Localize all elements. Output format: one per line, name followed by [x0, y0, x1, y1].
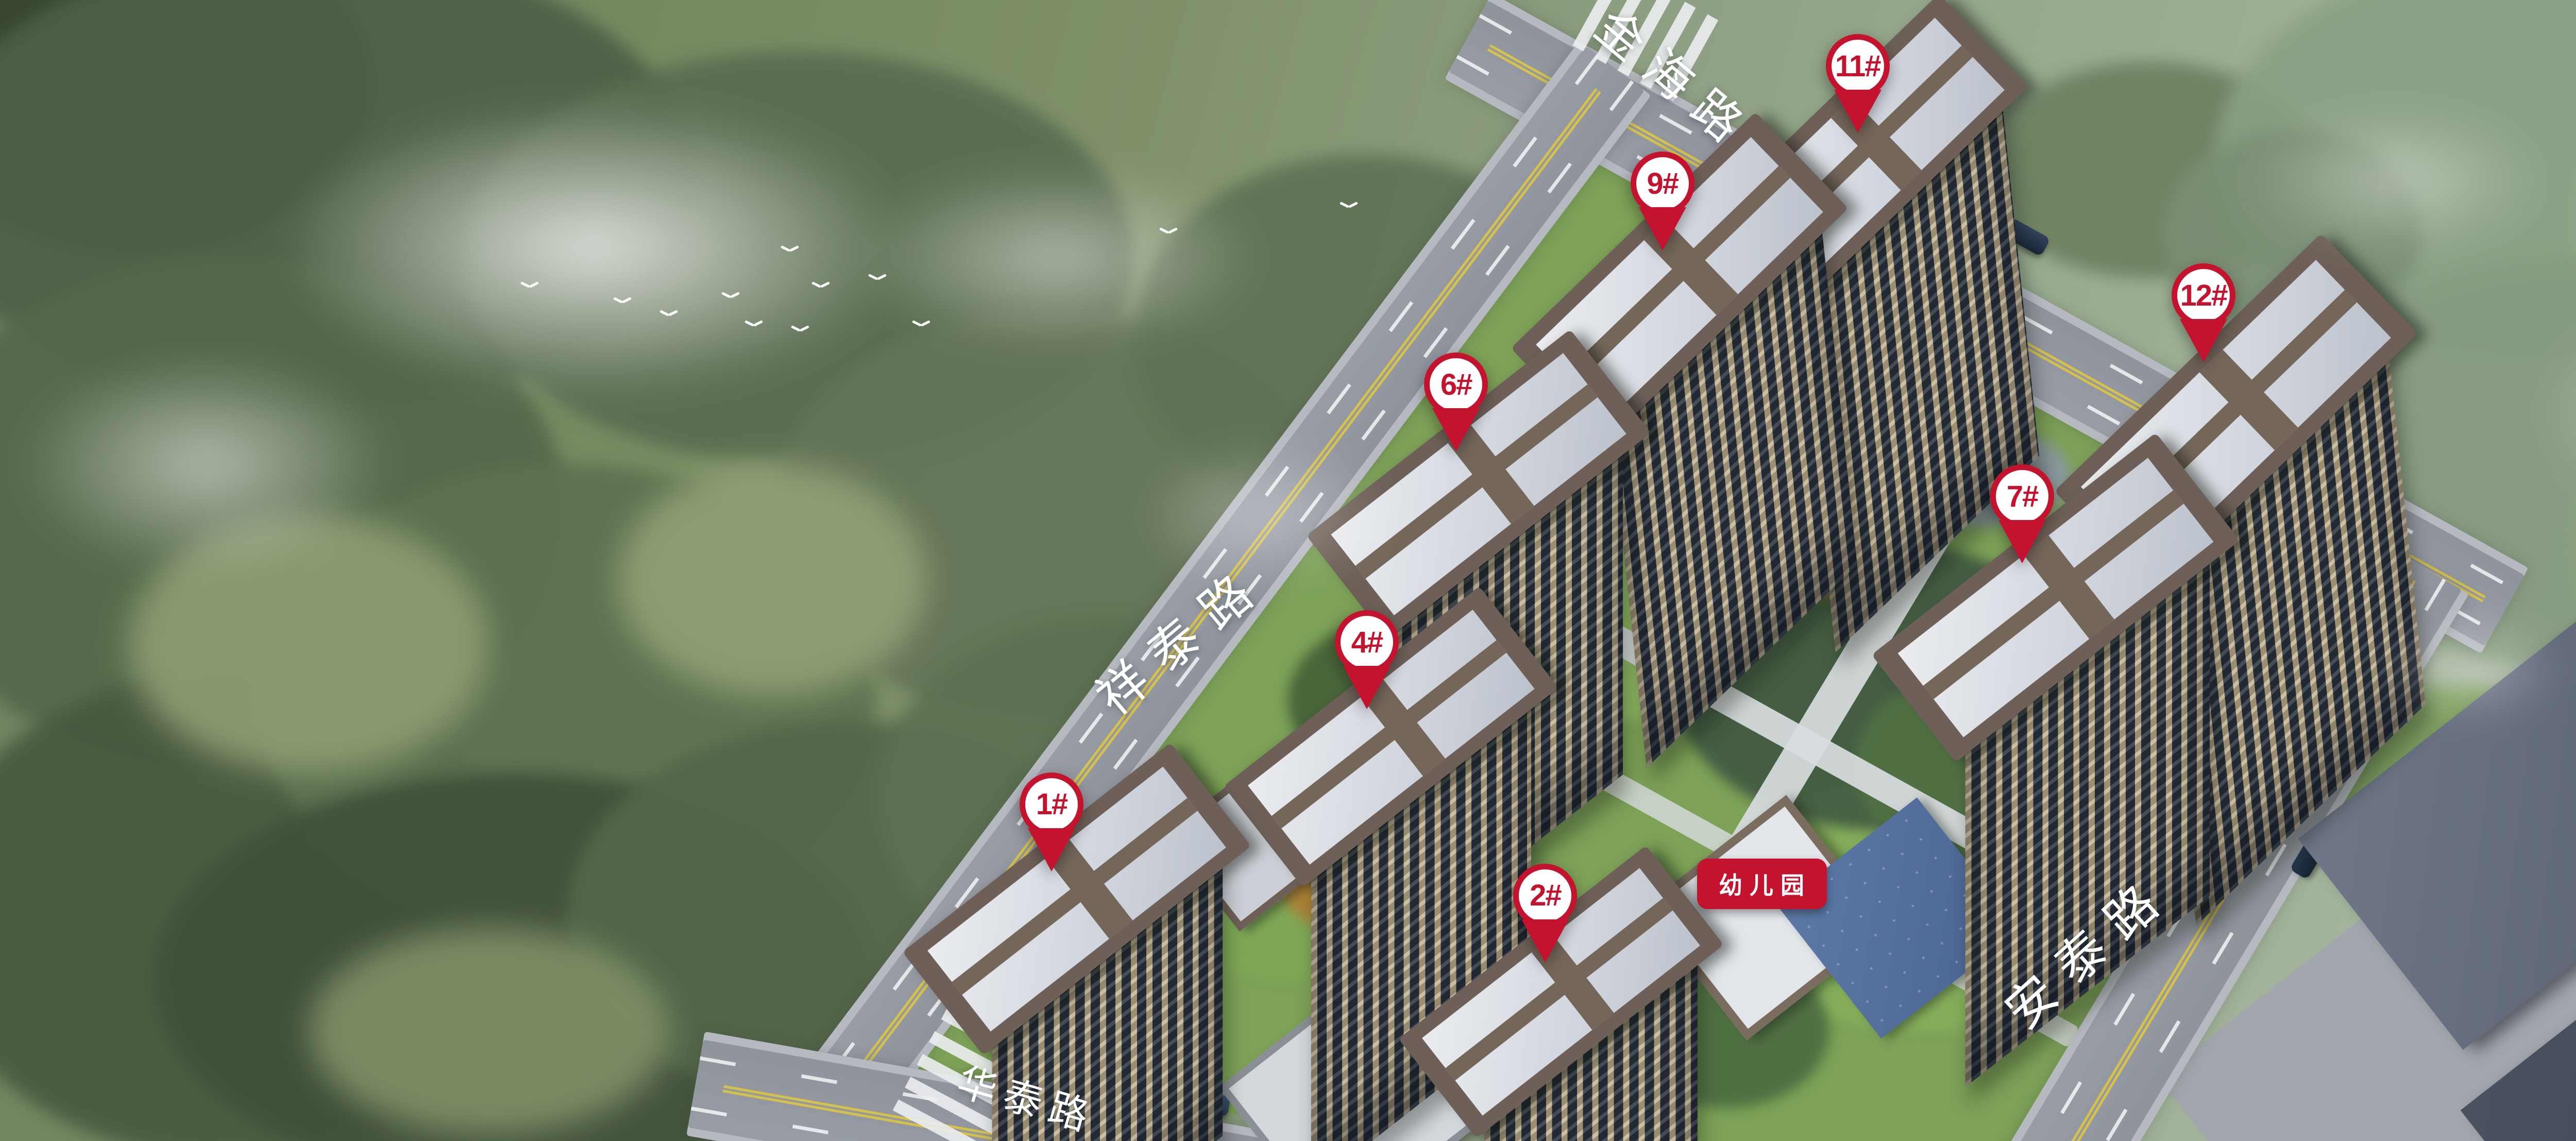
building-marker-label: 12#: [2172, 263, 2235, 327]
building-marker-label: 7#: [1990, 464, 2054, 528]
marker-tail-icon: [1639, 207, 1686, 250]
building-marker-label: 6#: [1424, 353, 1488, 416]
bird-icon: [1340, 201, 1358, 208]
bird-icon: [781, 245, 799, 252]
bird-icon: [811, 281, 830, 288]
marker-tail-icon: [1028, 828, 1075, 871]
marker-tail-icon: [1432, 408, 1480, 451]
bird-icon: [659, 309, 678, 316]
bird-icon: [721, 291, 740, 298]
bird-eye-view-rendering: 幼儿园 金海路 祥泰路 安泰路 华泰路 鸟瞰图 11#9#12#6#7#4#1#…: [0, 0, 2576, 1141]
building-marker-label: 1#: [1020, 773, 1083, 836]
building-marker-label: 9#: [1631, 152, 1694, 215]
meadow: [618, 464, 927, 696]
kindergarten-badge: 幼儿园: [1697, 859, 1827, 909]
building-marker[interactable]: 4#: [1335, 610, 1399, 709]
bird-icon: [791, 325, 809, 332]
bird-icon: [520, 281, 539, 288]
marker-tail-icon: [1834, 90, 1882, 133]
building-marker[interactable]: 9#: [1631, 152, 1694, 250]
marker-tail-icon: [1998, 520, 2046, 563]
bird-icon: [613, 296, 632, 304]
meadow: [309, 928, 670, 1134]
bird-icon: [1159, 227, 1178, 234]
building-marker[interactable]: 1#: [1020, 773, 1083, 871]
bird-icon: [868, 273, 887, 280]
mist-cloud: [773, 129, 1340, 387]
marker-tail-icon: [2180, 319, 2227, 362]
building-marker[interactable]: 2#: [1513, 864, 1577, 963]
building-marker-label: 11#: [1826, 34, 1890, 98]
building-marker[interactable]: 7#: [1990, 464, 2054, 563]
bird-icon: [912, 320, 930, 327]
building-marker-label: 2#: [1513, 864, 1577, 928]
marker-tail-icon: [1343, 666, 1391, 709]
marker-tail-icon: [1521, 919, 1569, 963]
building-marker[interactable]: 11#: [1826, 34, 1890, 133]
bird-icon: [744, 320, 763, 327]
building-marker[interactable]: 6#: [1424, 353, 1488, 451]
building-marker[interactable]: 12#: [2172, 263, 2235, 362]
building-marker-label: 4#: [1335, 610, 1399, 674]
